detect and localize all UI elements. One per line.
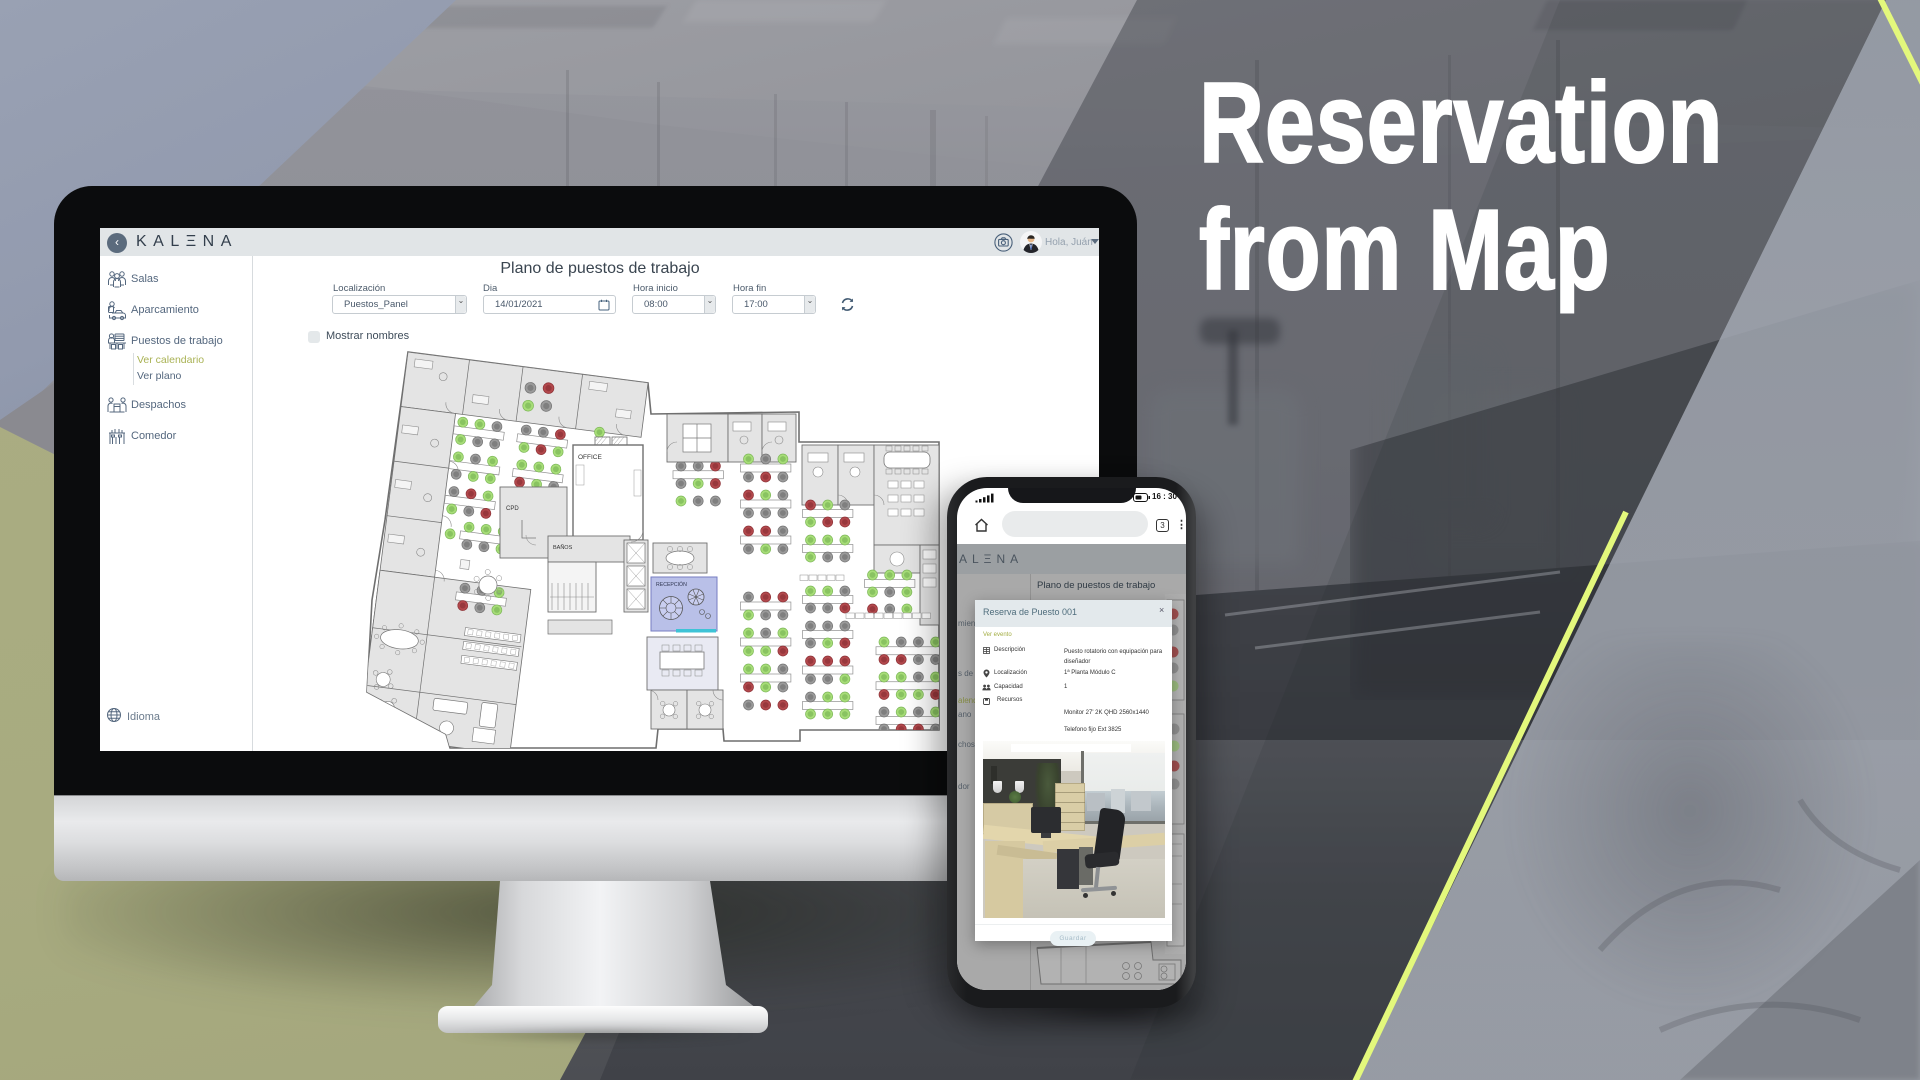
svg-text:BAÑOS: BAÑOS [553,544,573,551]
svg-text:RECEPCIÓN: RECEPCIÓN [656,581,687,588]
svg-text:OFFICE: OFFICE [578,454,602,461]
svg-text:CPD: CPD [506,506,519,512]
